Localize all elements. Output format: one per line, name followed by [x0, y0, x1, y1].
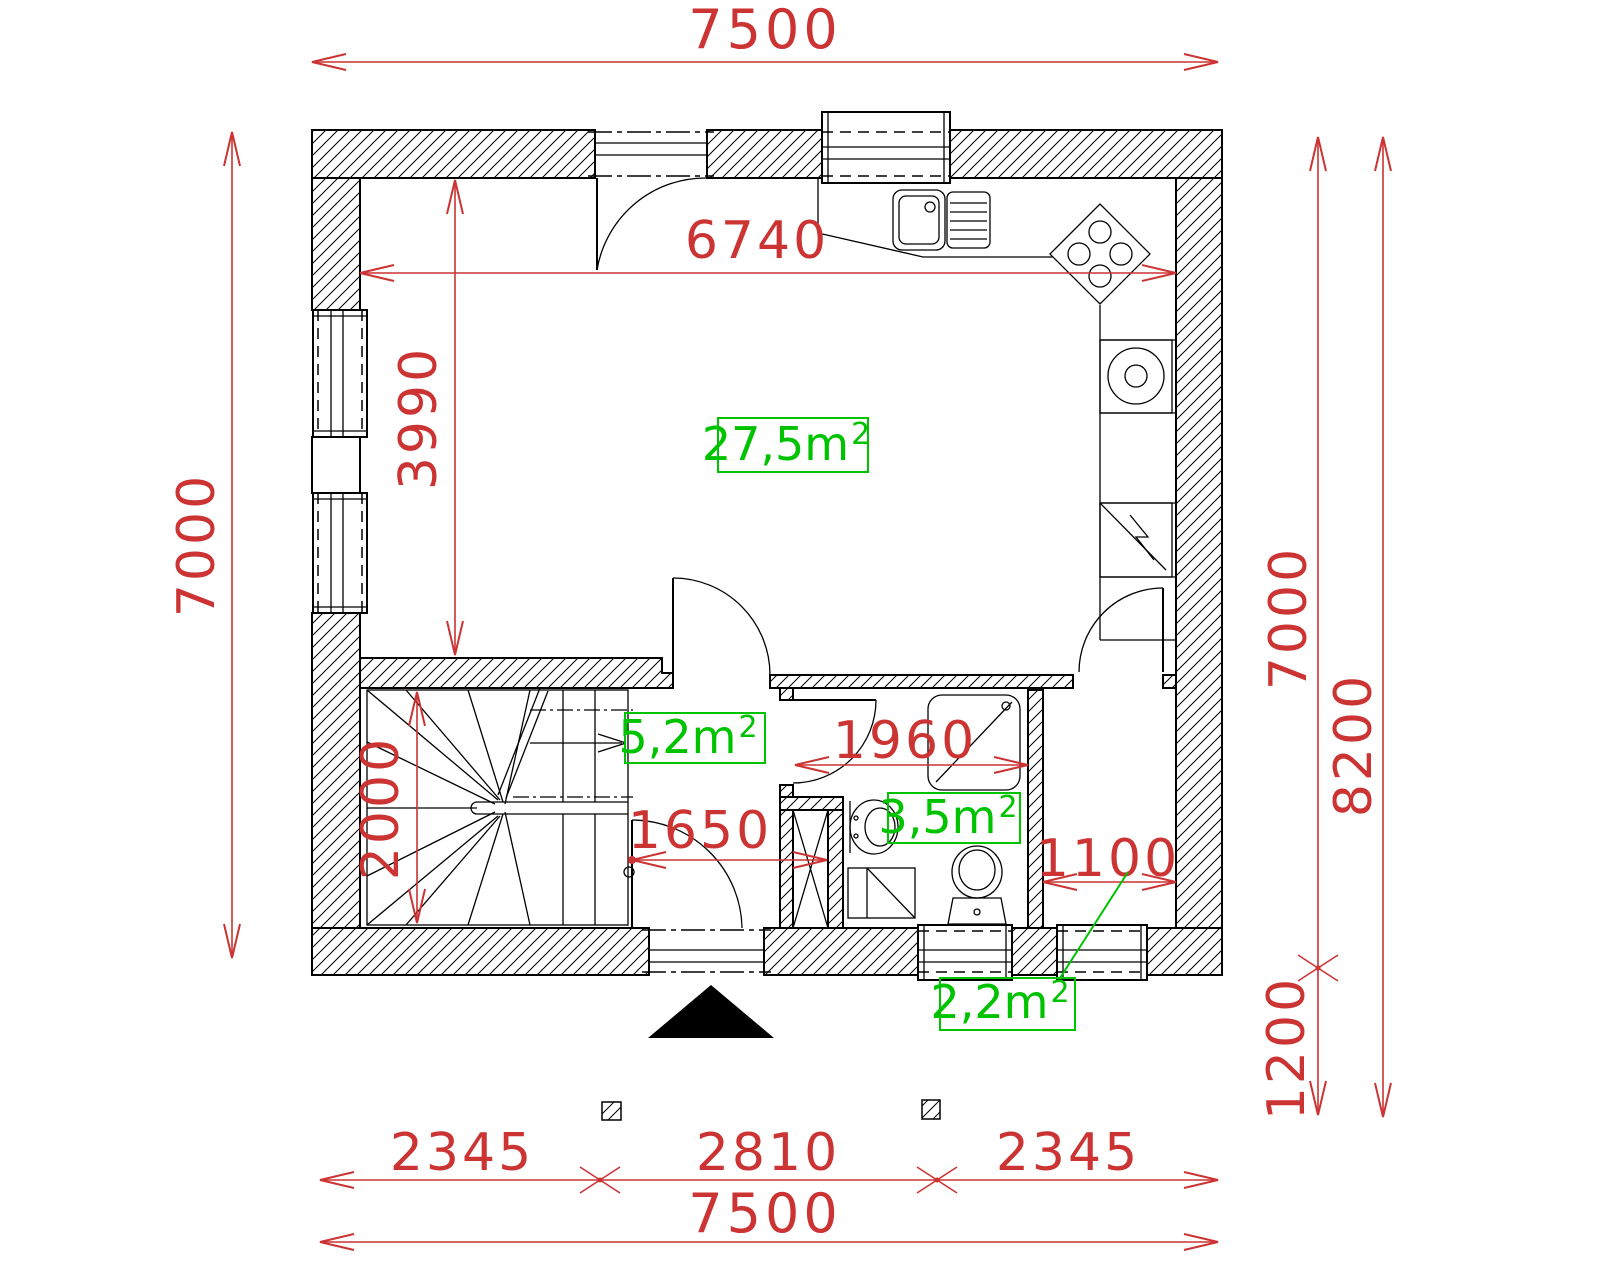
- area-living: 27,5m2: [702, 417, 870, 472]
- dim-porch-depth: 1200: [1257, 976, 1317, 1120]
- dim-right-total: 7000: [1259, 546, 1319, 690]
- dim-bottom-right: 2345: [996, 1123, 1140, 1183]
- window-pier: [312, 437, 360, 493]
- dim-top-inner: 6740: [685, 211, 829, 271]
- dim-bottom-left: 2345: [390, 1123, 534, 1183]
- dim-left-total: 7000: [167, 473, 227, 617]
- svg-text:27,5m2: 27,5m2: [702, 417, 870, 471]
- floor-plan-drawing: 7500 6740 7000 3990 2000 1650 1960 1100 …: [0, 0, 1600, 1280]
- floor-plan-page: 7500 6740 7000 3990 2000 1650 1960 1100 …: [0, 0, 1600, 1280]
- dim-overall-height: 8200: [1324, 673, 1384, 817]
- dim-bottom-total: 7500: [688, 1182, 841, 1245]
- dim-stair-depth: 2000: [351, 736, 411, 880]
- dim-entry-width: 1100: [1036, 829, 1180, 889]
- dim-bottom-center: 2810: [696, 1123, 840, 1183]
- dim-bath-width: 1960: [833, 711, 977, 771]
- dim-living-height: 3990: [389, 346, 449, 490]
- dim-hall-width: 1650: [628, 801, 772, 861]
- porch-post-left: [602, 1102, 621, 1120]
- paper-background: [0, 0, 1600, 1280]
- porch-post-right: [922, 1100, 940, 1119]
- dim-top-total: 7500: [688, 0, 841, 61]
